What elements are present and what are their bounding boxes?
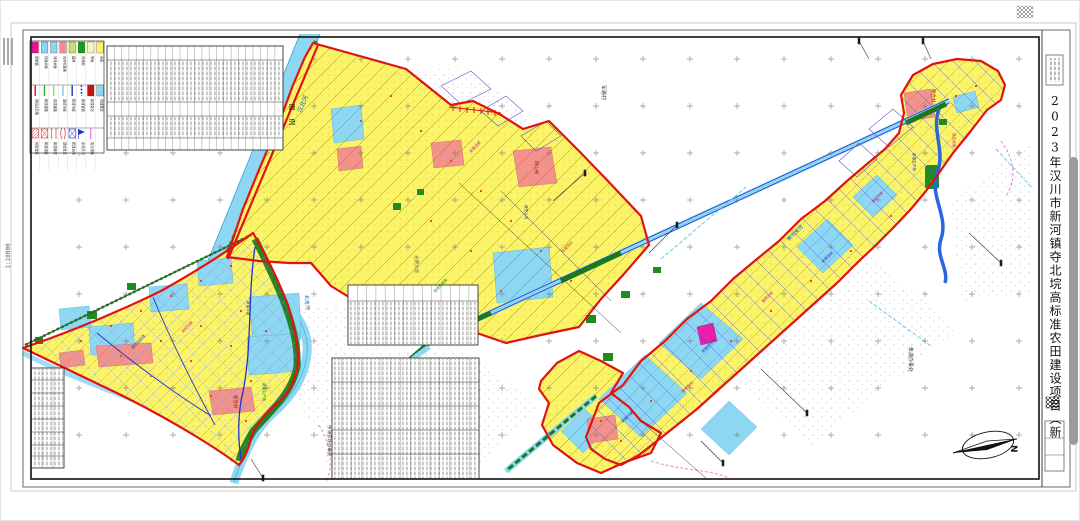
watermark-icon <box>1017 6 1033 18</box>
svg-text:改建道路: 改建道路 <box>53 99 58 113</box>
dot-symbol <box>810 280 812 282</box>
dot-symbol <box>110 325 112 327</box>
dot-symbol <box>650 400 652 402</box>
svg-text:建制镇: 建制镇 <box>35 56 40 66</box>
map-annotation: 新建生产路 <box>262 383 267 401</box>
dot-symbol <box>730 340 732 342</box>
dot-symbol <box>160 340 162 342</box>
works-summary-table <box>348 285 478 345</box>
legend-title: 图 例 <box>288 104 297 128</box>
dot-symbol <box>170 295 172 297</box>
dot-symbol <box>510 220 512 222</box>
svg-text:水田: 水田 <box>99 56 104 62</box>
dot-symbol <box>600 420 602 422</box>
dot-symbol <box>975 85 977 87</box>
svg-text:旱地: 旱地 <box>90 56 95 63</box>
svg-text:新建道路: 新建道路 <box>44 99 49 113</box>
dot-symbol <box>200 280 202 282</box>
landuse-code-table <box>107 46 283 150</box>
dot-symbol <box>480 190 482 192</box>
dot-symbol <box>570 280 572 282</box>
svg-text:新建泵站: 新建泵站 <box>90 99 95 113</box>
dot-symbol <box>890 215 892 217</box>
svg-text:电力线路: 电力线路 <box>90 142 95 156</box>
dot-symbol <box>690 370 692 372</box>
svg-text:现状沟渠: 现状沟渠 <box>62 99 67 113</box>
dot-symbol <box>540 250 542 252</box>
map-label: 同心村 <box>533 161 540 175</box>
dot-symbol <box>930 180 932 182</box>
dot-symbol <box>210 395 212 397</box>
dot-symbol <box>430 220 432 222</box>
dot-symbol <box>150 375 152 377</box>
dot-symbol <box>420 130 422 132</box>
dot-symbol <box>450 160 452 162</box>
svg-text:新建沟渠: 新建沟渠 <box>72 99 77 113</box>
svg-text:新建桥梁: 新建桥梁 <box>53 142 58 156</box>
dot-symbol <box>230 345 232 347</box>
svg-text:河流水面: 河流水面 <box>53 56 58 69</box>
map-label: 联合村 <box>930 89 937 103</box>
map-annotation: 新建斗渠 <box>246 301 251 316</box>
map-label: 朱湖办事处 <box>907 347 914 372</box>
svg-text:新建涵管: 新建涵管 <box>44 142 49 155</box>
dot-symbol <box>265 330 267 332</box>
dot-symbol <box>770 310 772 312</box>
dot-symbol <box>230 265 232 267</box>
dot-symbol <box>200 325 202 327</box>
svg-text:新建管道: 新建管道 <box>81 99 86 113</box>
svg-text:农村宅基地: 农村宅基地 <box>62 56 67 73</box>
svg-text:有林地: 有林地 <box>81 56 86 66</box>
north-label: N <box>1008 445 1018 453</box>
map-label: 新合村 <box>232 395 239 409</box>
dot-symbol <box>850 250 852 252</box>
svg-text:园地: 园地 <box>72 56 77 63</box>
dot-symbol <box>620 440 622 442</box>
dot-symbol <box>360 120 362 122</box>
dot-symbol <box>470 250 472 252</box>
svg-text:坑塘整治: 坑塘整治 <box>99 99 104 113</box>
sheet-title: 2023年汉川市新河镇夺北垸高标准农田建设项目（新建）规划图 <box>1044 93 1066 441</box>
map-label: 北支河 <box>303 295 311 310</box>
approval-stamp <box>3 38 15 65</box>
dot-symbol <box>955 95 957 97</box>
dot-symbol <box>120 355 122 357</box>
svg-text:项目区范围: 项目区范围 <box>35 99 40 115</box>
map-label: 中洲农场办事处 <box>326 425 333 457</box>
planning-map-sheet: 建制镇坑塘水面河流水面农村宅基地园地有林地旱地水田项目区范围新建道路改建道路现状… <box>1 1 1080 521</box>
svg-text:坑塘水面: 坑塘水面 <box>44 56 49 69</box>
map-annotation: 新建生产桥 <box>912 153 917 171</box>
dot-symbol <box>245 420 247 422</box>
svg-text:现状泵站: 现状泵站 <box>62 142 67 156</box>
scale-label: 1:10000 <box>5 227 15 285</box>
map-label: 光明大垸 <box>413 255 420 273</box>
dot-symbol <box>140 310 142 312</box>
dot-symbol <box>390 95 392 97</box>
svg-text:新建水闸: 新建水闸 <box>72 142 77 155</box>
svg-text:拆除建筑: 拆除建筑 <box>35 142 40 156</box>
quantity-table <box>332 358 479 479</box>
signature-table <box>31 368 64 468</box>
dot-symbol <box>240 310 242 312</box>
map-annotation: 低压线路 <box>952 133 957 148</box>
scrollbar-thumb[interactable] <box>1069 157 1078 445</box>
dot-symbol <box>190 360 192 362</box>
map-annotation: 疏挖斗沟 <box>524 205 529 220</box>
dot-symbol <box>250 380 252 382</box>
svg-text:水流方向: 水流方向 <box>81 142 86 155</box>
map-label: 军路村 <box>600 85 607 100</box>
map-viewer: 建制镇坑塘水面河流水面农村宅基地园地有林地旱地水田项目区范围新建道路改建道路现状… <box>0 0 1080 521</box>
